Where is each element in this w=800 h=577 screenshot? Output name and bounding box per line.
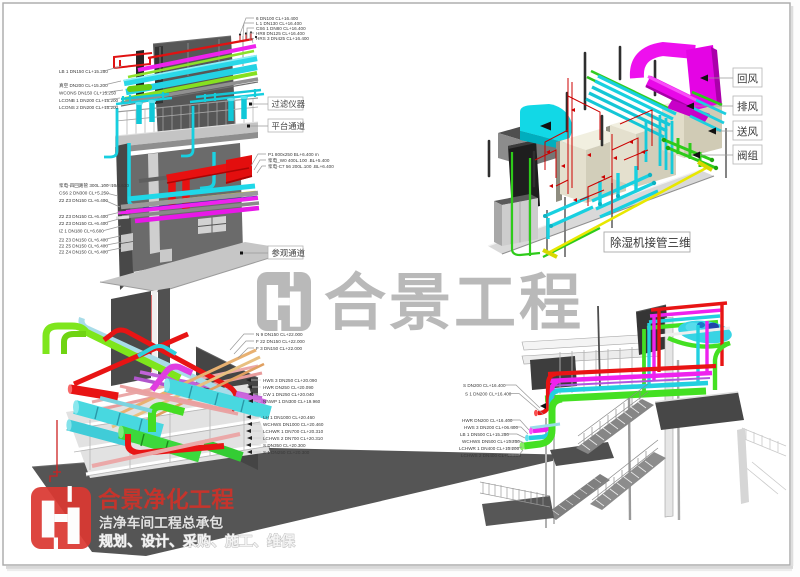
- svg-text:LB 1 DN150 CL+15.250: LB 1 DN150 CL+15.250: [59, 69, 108, 74]
- svg-text:Z2 Z3 DN150 CL+6.400: Z2 Z3 DN150 CL+6.400: [59, 221, 108, 226]
- svg-text:阀组: 阀组: [737, 149, 758, 162]
- svg-text:浆电_W0 400L.100 .BL+5.400: 浆电_W0 400L.100 .BL+5.400: [268, 157, 330, 163]
- svg-text:NNWP 1 DN300 CL+19.960: NNWP 1 DN300 CL+19.960: [263, 399, 321, 404]
- svg-text:Z2 Z5 DN150 CL+6.400: Z2 Z5 DN150 CL+6.400: [59, 244, 108, 249]
- svg-text:HRS 3 DN425 CL+16.400: HRS 3 DN425 CL+16.400: [256, 36, 309, 41]
- svg-text:WCHWS DN500 CL+15.250: WCHWS DN500 CL+15.250: [462, 439, 520, 444]
- svg-text:浆电-C7 56 200L.100 .BL+6.400: 浆电-C7 56 200L.100 .BL+6.400: [268, 163, 334, 169]
- svg-text:Z2 Z3 DN150 CL+6.400: Z2 Z3 DN150 CL+6.400: [59, 238, 108, 243]
- svg-text:F 3 DN150 CL+22.000: F 3 DN150 CL+22.000: [256, 346, 303, 351]
- svg-text:LCHWS 2 DN700 CL+20.310: LCHWS 2 DN700 CL+20.310: [263, 436, 323, 441]
- svg-text:S DN350 CL+20.300: S DN350 CL+20.300: [263, 443, 306, 448]
- svg-text:过滤仪器: 过滤仪器: [272, 99, 306, 109]
- svg-text:参观通道: 参观通道: [272, 248, 306, 258]
- svg-text:规划、设计、采购、施工、维保: 规划、设计、采购、施工、维保: [99, 533, 296, 549]
- svg-text:S 1 DN250 CL+20.300: S 1 DN250 CL+20.300: [263, 450, 310, 455]
- svg-text:CS6 2 DN300 CL+5.250: CS6 2 DN300 CL+5.250: [59, 191, 109, 196]
- svg-text:LCHWR 1 DN400 CL+15.200: LCHWR 1 DN400 CL+15.200: [459, 446, 520, 451]
- svg-text:WCONS DN150 CL+15.250: WCONS DN150 CL+15.250: [59, 91, 117, 96]
- svg-text:WCHWS DN1000 CL+20.460: WCHWS DN1000 CL+20.460: [263, 422, 324, 427]
- svg-text:平台通道: 平台通道: [272, 121, 306, 131]
- svg-text:合景工程: 合景工程: [324, 269, 584, 338]
- svg-text:HWR DN200 CL+16.400: HWR DN200 CL+16.400: [462, 418, 513, 423]
- svg-text:回风: 回风: [737, 73, 758, 85]
- svg-text:LB 1 DN500 CL+15.250: LB 1 DN500 CL+15.250: [460, 432, 509, 437]
- svg-text:F 22 DN150 CL+22.000: F 22 DN150 CL+22.000: [256, 339, 305, 344]
- svg-text:Z2 Z3 DN150 CL+6.400: Z2 Z3 DN150 CL+6.400: [59, 214, 108, 219]
- svg-text:LCONS 2 DN200 CL+15.200: LCONS 2 DN200 CL+15.200: [59, 105, 119, 110]
- svg-text:S 1 DN200 CL+16.400: S 1 DN200 CL+16.400: [465, 392, 512, 397]
- svg-text:送风: 送风: [737, 125, 758, 138]
- svg-text:洁净车间工程总承包: 洁净车间工程总承包: [99, 515, 223, 531]
- svg-text:HWS 3 DN250 CL+20.090: HWS 3 DN250 CL+20.090: [263, 378, 317, 383]
- svg-text:LCHWR 1 DN700 CL+20.310: LCHWR 1 DN700 CL+20.310: [263, 429, 324, 434]
- svg-text:CW 1 DN250 CL+20.040: CW 1 DN250 CL+20.040: [263, 392, 314, 397]
- svg-text:N 9 DN150 CL+22.000: N 9 DN150 CL+22.000: [256, 332, 303, 337]
- svg-text:S DN200 CL+16.400: S DN200 CL+16.400: [463, 383, 506, 388]
- svg-text:P1 800x250 BL+6.400 m: P1 800x250 BL+6.400 m: [268, 152, 319, 157]
- svg-text:LCONB 1 DN200 CL+15.200: LCONB 1 DN200 CL+15.200: [59, 98, 119, 103]
- svg-text:真空 DN200 CL+15.200: 真空 DN200 CL+15.200: [59, 82, 108, 89]
- svg-text:排风: 排风: [737, 100, 758, 113]
- svg-text:浆电-四回路管 300L.100 .16/5.630: 浆电-四回路管 300L.100 .16/5.630: [59, 182, 129, 189]
- svg-text:HWS 3 DN200 CL+06.400: HWS 3 DN200 CL+06.400: [464, 425, 518, 430]
- svg-text:LH 1 DN1000 CL+20.460: LH 1 DN1000 CL+20.460: [263, 415, 315, 420]
- svg-text:合景净化工程: 合景净化工程: [98, 487, 235, 513]
- svg-text:Z2 Z3 DN150 CL+6.400: Z2 Z3 DN150 CL+6.400: [59, 198, 108, 203]
- svg-text:IZ 1 DN180 CL+6.600: IZ 1 DN180 CL+6.600: [59, 229, 104, 234]
- svg-text:HWR DN250 CL+20.090: HWR DN250 CL+20.090: [263, 385, 314, 390]
- svg-text:LCHWS 2 DN400 CL+15.200: LCHWS 2 DN400 CL+15.200: [461, 453, 521, 458]
- svg-text:除湿机接管三维: 除湿机接管三维: [610, 236, 691, 250]
- svg-text:Z2 Z4 DN150 CL+6.400: Z2 Z4 DN150 CL+6.400: [59, 250, 108, 255]
